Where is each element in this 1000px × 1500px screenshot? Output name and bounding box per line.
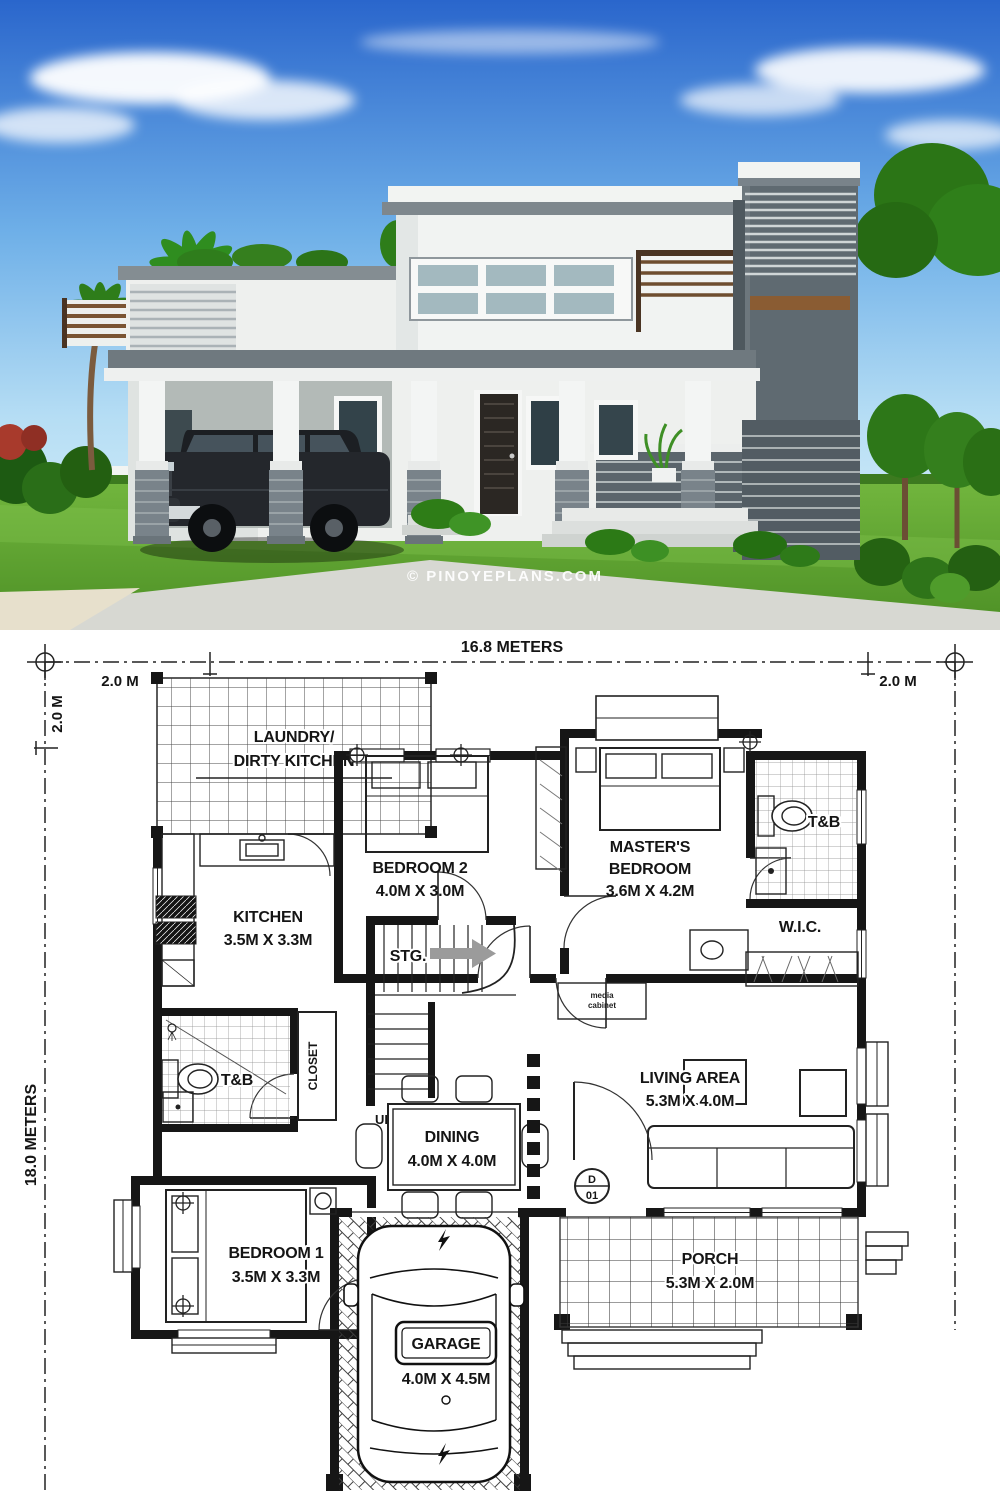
house-render: © PINOYEPLANS.COM: [0, 0, 1000, 630]
dim-depth-label: 18.0 METERS: [23, 1084, 40, 1187]
garage-label: GARAGE: [411, 1336, 481, 1353]
window-right: [594, 400, 638, 460]
living-size: 5.3M X 4.0M: [646, 1093, 735, 1110]
laundry-label-1: LAUNDRY/: [254, 729, 335, 746]
master-label-2: BEDROOM: [609, 861, 691, 878]
master-label-1: MASTER'S: [610, 839, 691, 856]
watermark: © PINOYEPLANS.COM: [407, 568, 603, 585]
tb-upper-label: T&B: [808, 814, 840, 831]
kitchen-label: KITCHEN: [233, 909, 303, 926]
media-cabinet-label-2: cabinet: [588, 1001, 616, 1010]
porch-size: 5.3M X 2.0M: [666, 1275, 755, 1292]
living-label: LIVING AREA: [640, 1070, 741, 1087]
garage-size: 4.0M X 4.5M: [402, 1371, 491, 1388]
closet-label: CLOSET: [306, 1041, 320, 1090]
dim-setback-left: 2.0 M: [101, 673, 139, 690]
bedroom1-size: 3.5M X 3.3M: [232, 1269, 321, 1286]
second-floor: [382, 186, 760, 352]
media-cabinet-label-1: media: [590, 991, 614, 1000]
room-garage: GARAGE 4.0M X 4.5M: [339, 1217, 524, 1490]
dim-width-label: 16.8 METERS: [461, 639, 564, 656]
kitchen-size: 3.5M X 3.3M: [224, 932, 313, 949]
wic-label: W.I.C.: [779, 919, 821, 936]
porch-label: PORCH: [682, 1251, 739, 1268]
bedroom2-size: 4.0M X 3.0M: [376, 883, 465, 900]
master-size: 3.6M X 4.2M: [606, 883, 695, 900]
floor-plan: 16.8 METERS 2.0 M 2.0 M 2.0 M 18.0 METER…: [0, 630, 1000, 1500]
door-mark-letter: D: [588, 1174, 596, 1186]
dim-setback-right: 2.0 M: [879, 673, 917, 690]
bedroom1-label: BEDROOM 1: [228, 1245, 323, 1262]
tb-lower-label: T&B: [221, 1072, 253, 1089]
front-door: [474, 390, 522, 516]
room-tb-upper: T&B: [755, 760, 857, 899]
dim-setback-front: 2.0 M: [49, 695, 66, 733]
storage-label: STG.: [390, 948, 427, 965]
dining-size: 4.0M X 4.0M: [408, 1153, 497, 1170]
bedroom2-label: BEDROOM 2: [372, 860, 467, 877]
door-mark-number: 01: [586, 1190, 598, 1202]
dining-label: DINING: [425, 1129, 480, 1146]
pin-image: © PINOYEPLANS.COM: [0, 0, 1000, 1500]
